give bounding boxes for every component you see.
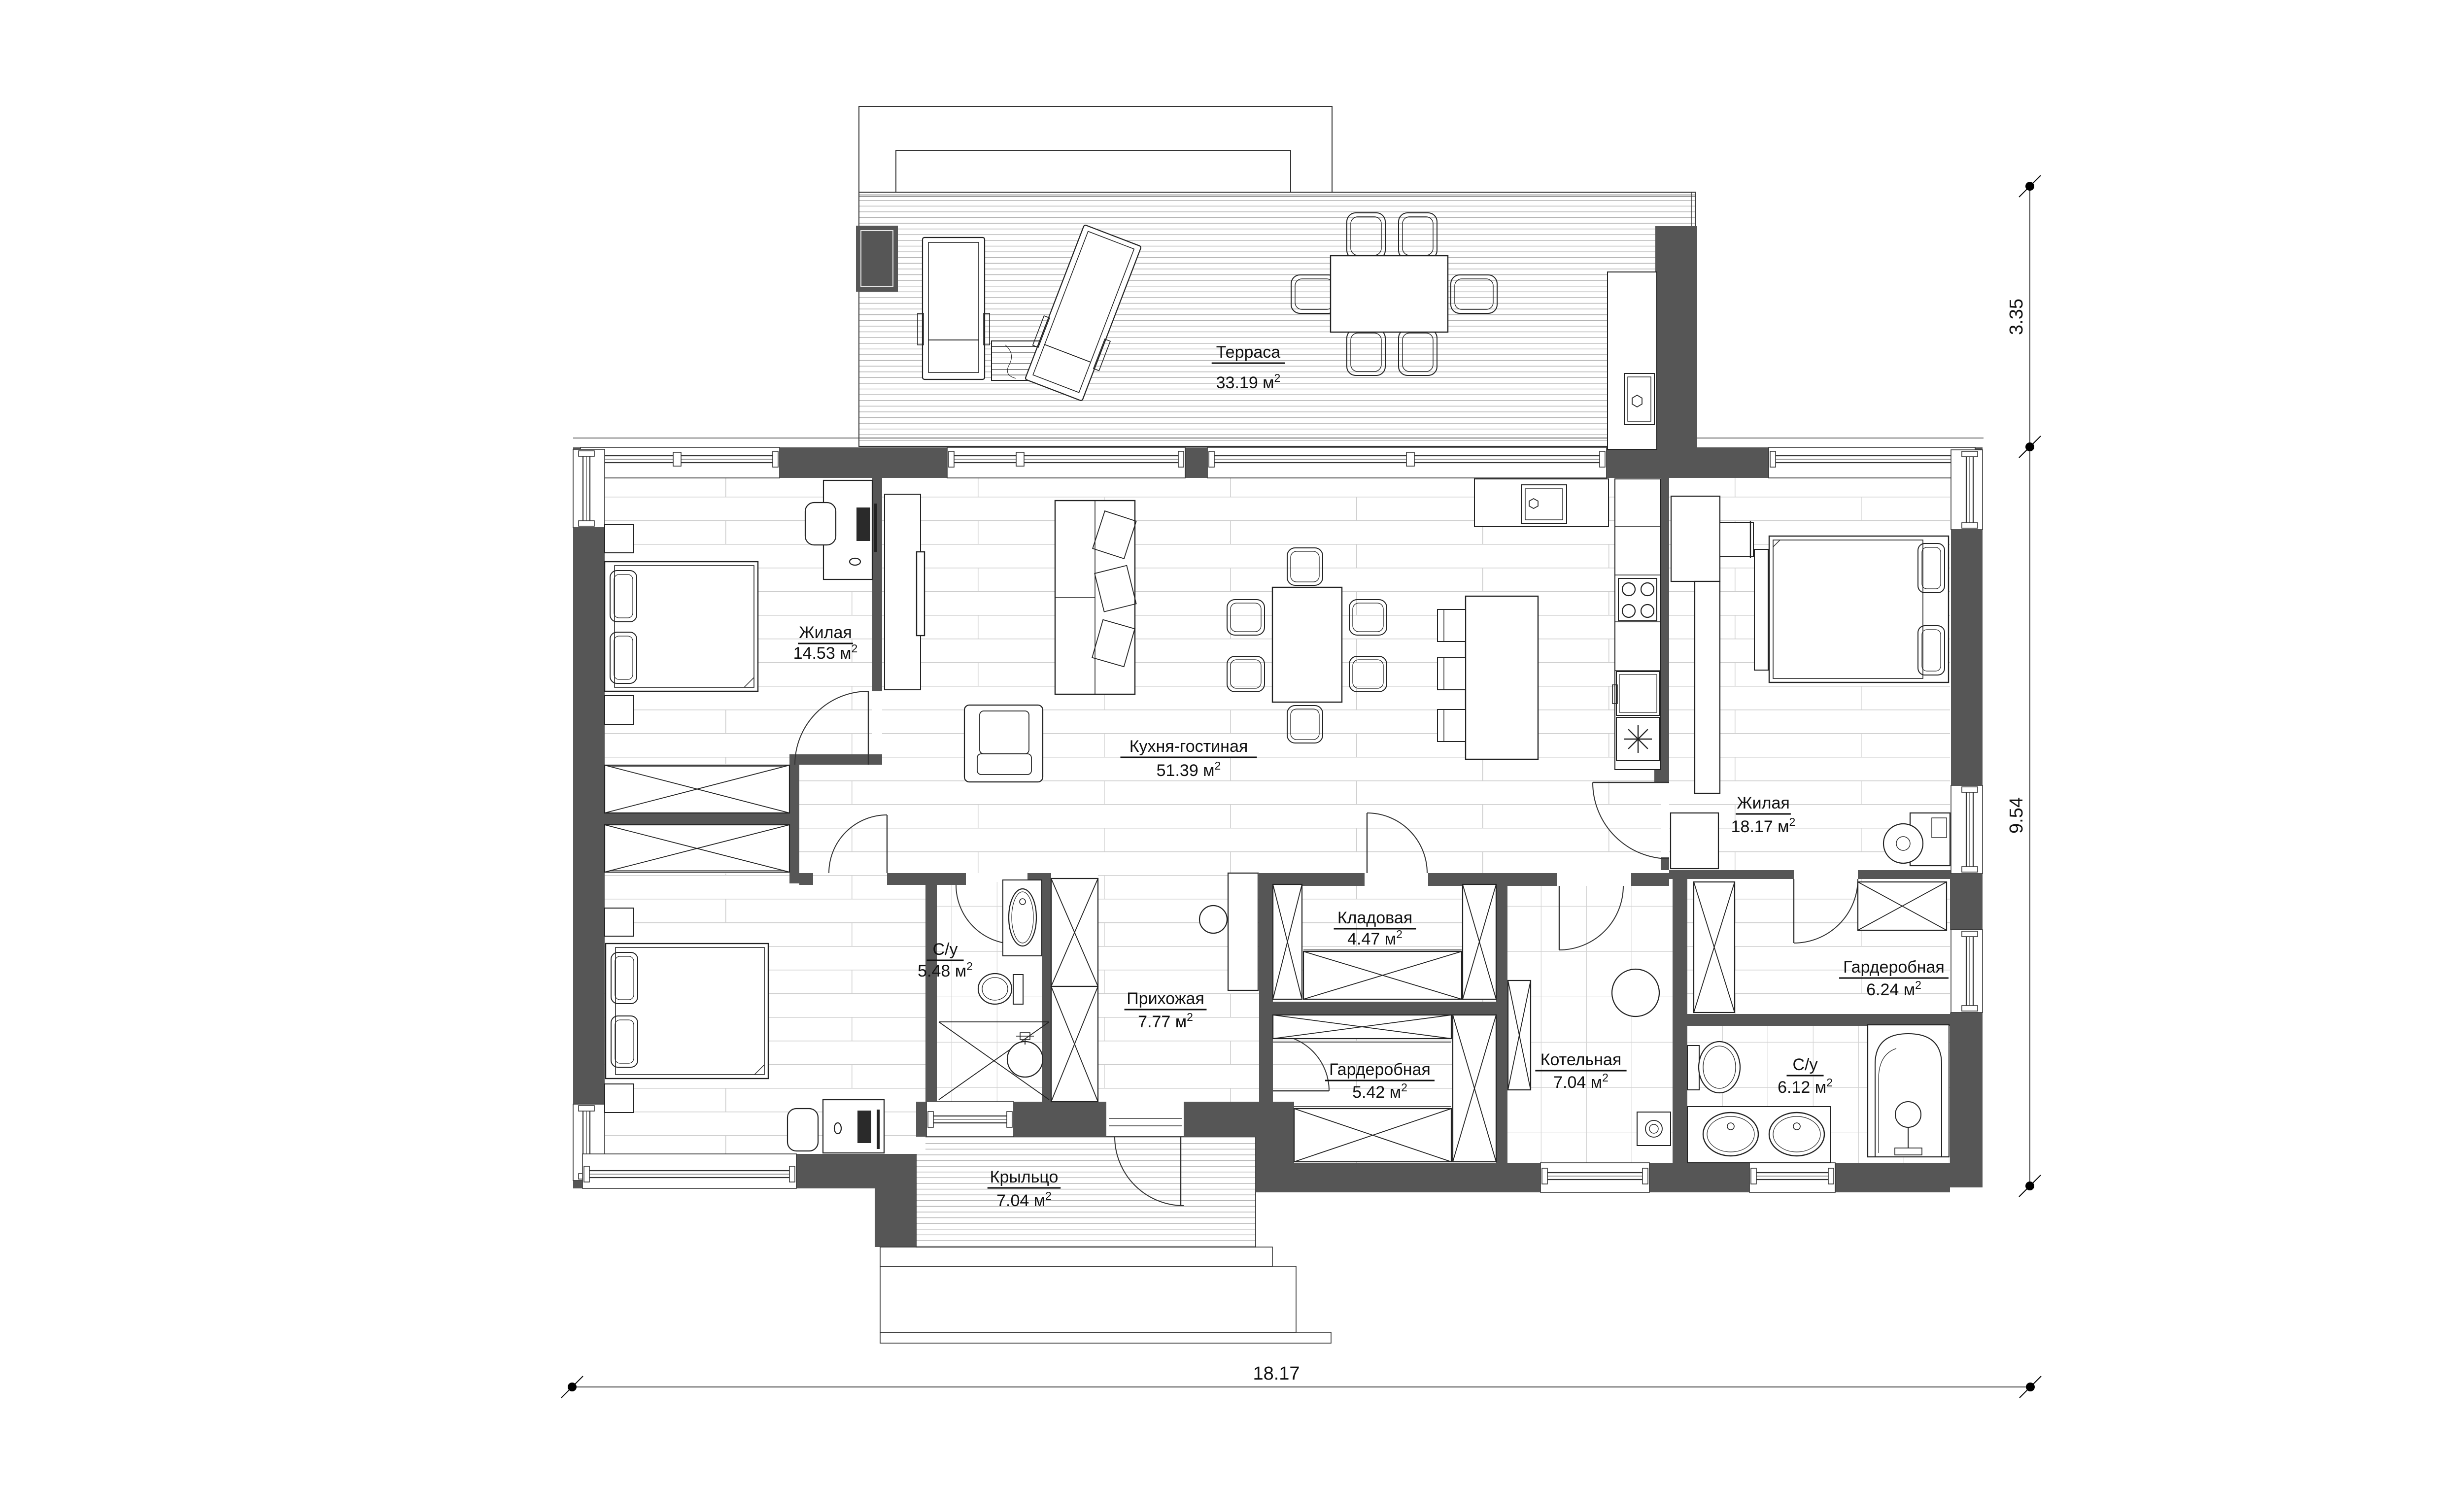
svg-text:7.77 м2: 7.77 м2 [1138,1011,1193,1031]
svg-text:3.35: 3.35 [2006,299,2027,335]
svg-text:Прихожая: Прихожая [1127,989,1204,1008]
svg-text:4.47 м2: 4.47 м2 [1347,928,1403,948]
svg-text:Гардеробная: Гардеробная [1843,958,1945,977]
svg-text:5.48 м2: 5.48 м2 [918,960,973,980]
svg-text:5.42 м2: 5.42 м2 [1352,1081,1407,1102]
svg-text:Кладовая: Кладовая [1337,909,1412,927]
svg-text:33.19 м2: 33.19 м2 [1216,371,1281,392]
svg-text:14.53 м2: 14.53 м2 [793,642,858,663]
svg-text:6.12 м2: 6.12 м2 [1778,1076,1833,1097]
svg-text:Котельная: Котельная [1540,1050,1622,1069]
svg-text:Гардеробная: Гардеробная [1329,1060,1431,1079]
svg-text:Кухня-гостиная: Кухня-гостиная [1129,737,1248,756]
svg-text:Терраса: Терраса [1216,343,1280,362]
svg-text:Жилая: Жилая [1737,794,1790,812]
svg-text:Крыльцо: Крыльцо [990,1168,1059,1186]
svg-text:С/у: С/у [933,940,958,959]
svg-text:7.04 м2: 7.04 м2 [996,1189,1052,1210]
svg-text:18.17 м2: 18.17 м2 [1731,815,1796,836]
svg-text:6.24 м2: 6.24 м2 [1866,979,1921,999]
svg-text:18.17: 18.17 [1253,1363,1300,1384]
svg-text:7.04 м2: 7.04 м2 [1553,1071,1608,1092]
svg-text:9.54: 9.54 [2006,797,2027,834]
svg-text:Жилая: Жилая [799,623,852,642]
svg-text:51.39 м2: 51.39 м2 [1157,759,1221,780]
svg-text:С/у: С/у [1793,1055,1818,1074]
